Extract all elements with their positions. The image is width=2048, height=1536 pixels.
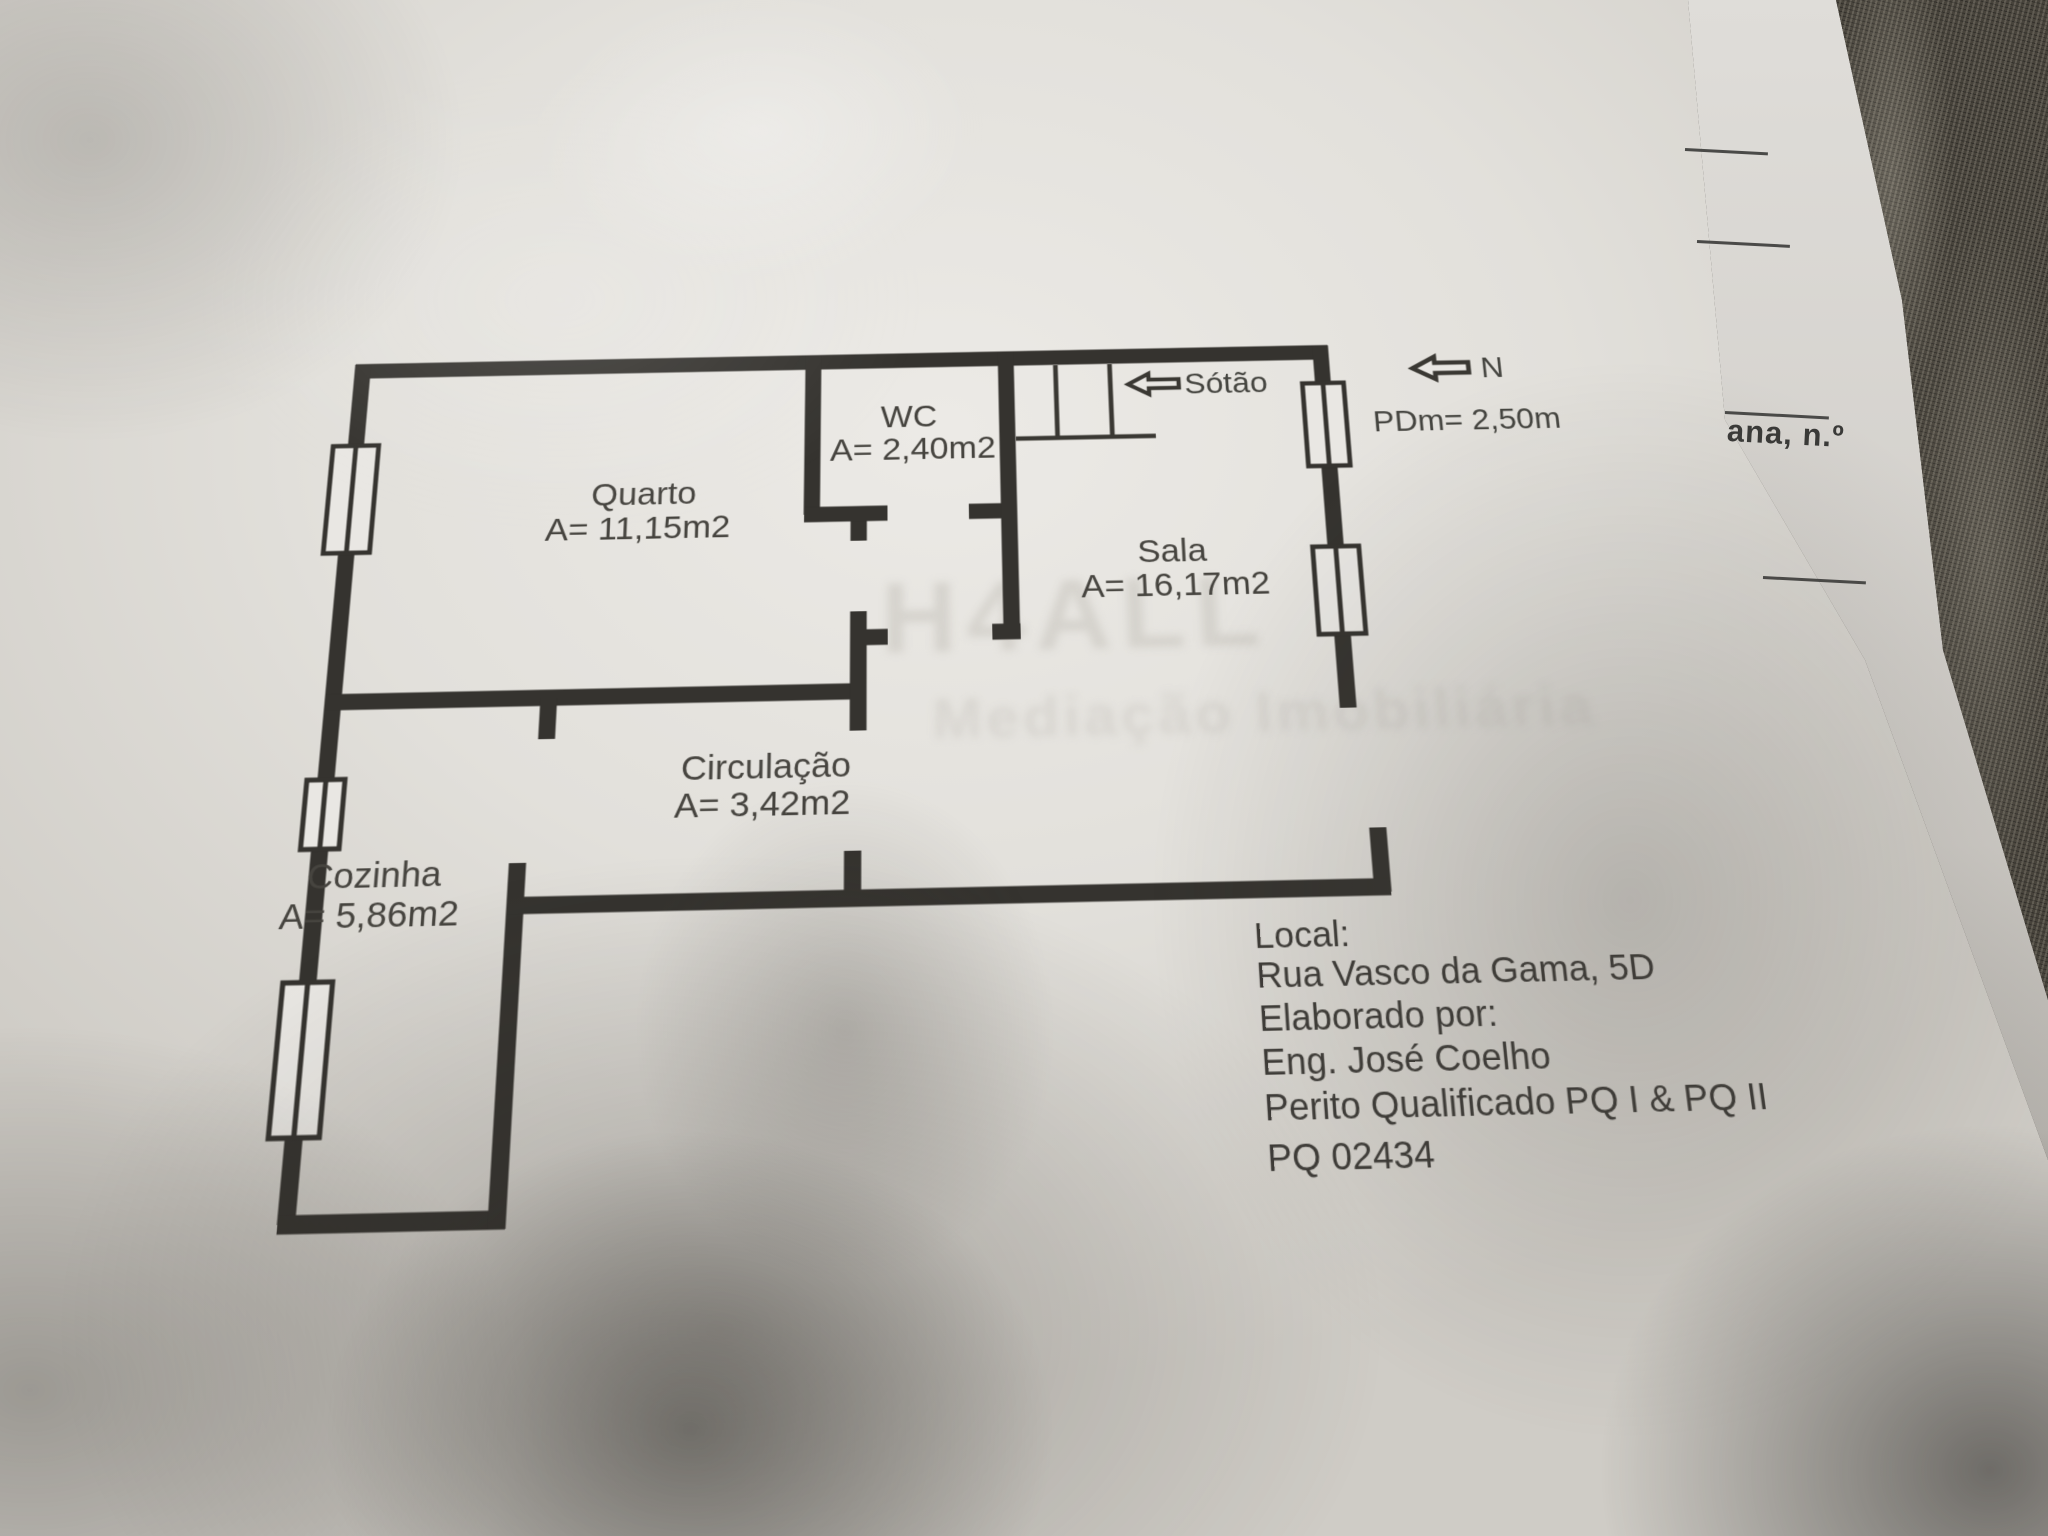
stair-base-line: [1016, 436, 1156, 439]
attic-stairs: [1014, 363, 1156, 438]
room-area-cozinha: A= 5,86m2: [277, 893, 460, 938]
window-kitchen-left: [268, 982, 332, 1139]
watermark-line-2: Mediação Imobiliária: [932, 674, 1599, 752]
photo-frame: H4ALL Mediação Imobiliária: [0, 0, 2048, 1536]
ceiling-height-label: PDm= 2,50m: [1372, 401, 1563, 437]
room-label-wc: WC: [881, 399, 938, 435]
room-area-sala: A= 16,17m2: [1081, 565, 1272, 605]
under-sheet-text-fragment: ana, n.º: [1726, 413, 1845, 455]
stair-tread-2: [1109, 364, 1112, 437]
attic-arrow-icon: [1128, 373, 1180, 395]
room-label-circulacao: Circulação: [680, 746, 851, 788]
room-label-sala: Sala: [1137, 532, 1209, 570]
wall-kitchen-right: [496, 863, 517, 1229]
north-arrow-icon: [1411, 356, 1469, 379]
window-quarto-left: [323, 445, 379, 553]
attic-label: Sótão: [1183, 366, 1268, 400]
room-area-wc: A= 2,40m2: [830, 430, 996, 468]
plan-perspective-wrap: H4ALL Mediação Imobiliária: [178, 328, 1864, 1286]
wall-wc-bottom: [804, 510, 1017, 514]
wall-exterior-top: [355, 352, 1328, 371]
stair-tread-1: [1055, 365, 1057, 438]
info-line-elaborado: Elaborado por:: [1258, 994, 1500, 1040]
floor-plan-svg: H4ALL Mediação Imobiliária: [178, 328, 1864, 1286]
wall-sala-bottom: [507, 839, 1391, 906]
wall-quarto-bottom: [325, 691, 866, 702]
window-sala-lower: [1313, 546, 1366, 634]
room-area-quarto: A= 11,15m2: [544, 509, 730, 549]
info-line-local: Local:: [1253, 915, 1351, 957]
info-line-perito: Perito Qualificado PQ I & PQ II: [1263, 1076, 1770, 1129]
window-sala-upper: [1302, 383, 1350, 467]
north-label: N: [1479, 351, 1505, 384]
info-block: Local: Rua Vasco da Gama, 5D Elaborado p…: [1253, 906, 1778, 1180]
room-label-cozinha: Cozinha: [305, 854, 444, 897]
room-label-quarto: Quarto: [590, 476, 697, 514]
info-line-address: Rua Vasco da Gama, 5D: [1255, 947, 1657, 996]
wall-kitchen-door-jamb: [547, 698, 549, 739]
wall-wc-left: [812, 356, 814, 515]
window-circulation-left: [300, 779, 345, 849]
wall-kitchen-bottom: [277, 1220, 505, 1225]
info-line-engineer: Eng. José Coelho: [1260, 1036, 1552, 1084]
room-area-circulacao: A= 3,42m2: [674, 783, 851, 826]
info-line-pq-number: PQ 02434: [1266, 1134, 1436, 1181]
